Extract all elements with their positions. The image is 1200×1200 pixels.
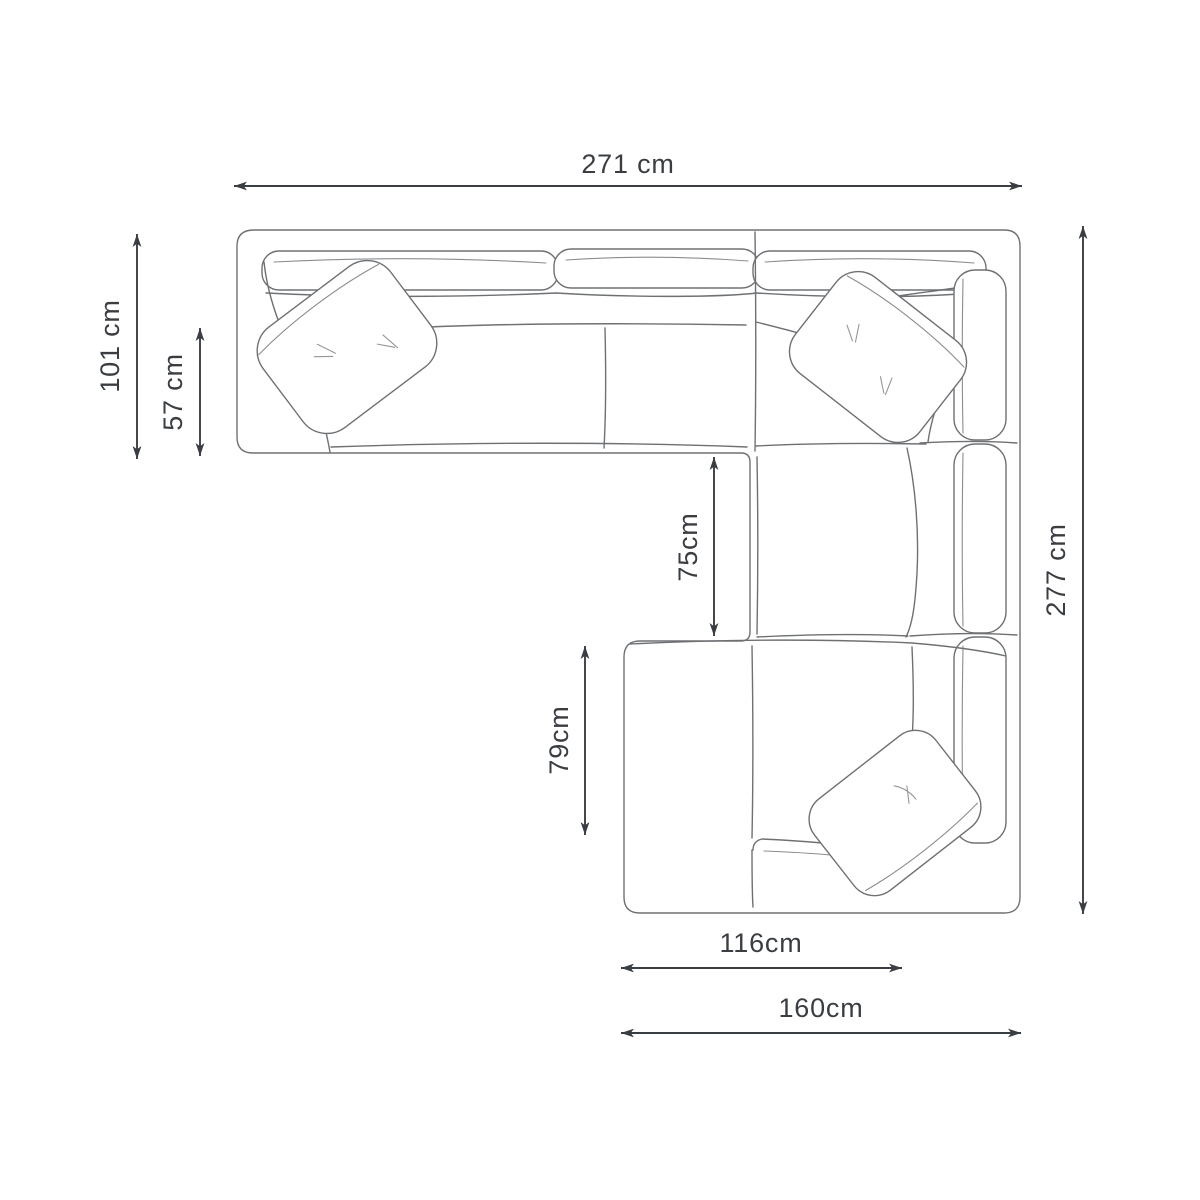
- dimension-total-width: 271 cm: [234, 149, 1022, 186]
- dimension-chaise-width: 116cm: [621, 928, 902, 968]
- dimension-label: 271 cm: [581, 149, 674, 179]
- diagram-canvas: 271 cm 101 cm 57 cm 75cm 79cm 277 cm: [0, 0, 1200, 1200]
- sofa-dimension-diagram: 271 cm 101 cm 57 cm 75cm 79cm 277 cm: [0, 0, 1200, 1200]
- dimension-label: 57 cm: [158, 353, 188, 431]
- dimension-bottom-width: 160cm: [621, 993, 1021, 1033]
- dimension-label: 277 cm: [1041, 523, 1071, 616]
- back-cushion-middle: [554, 249, 759, 288]
- dimension-label: 75cm: [673, 512, 703, 581]
- dimension-chaise-length: 79cm: [544, 646, 585, 835]
- dimension-label: 79cm: [544, 705, 574, 774]
- dimension-inner-depth: 75cm: [673, 457, 714, 636]
- sofa-drawing: [237, 230, 1020, 913]
- back-cushion-left: [262, 251, 558, 290]
- dimension-label: 160cm: [778, 993, 863, 1023]
- dimension-total-depth: 277 cm: [1041, 226, 1083, 914]
- dimension-left-depth: 101 cm: [95, 234, 137, 459]
- dimension-label: 101 cm: [95, 299, 125, 392]
- right-module-inner-seam: [757, 457, 758, 634]
- dimension-label: 116cm: [719, 928, 802, 958]
- module-seam-corner: [755, 232, 756, 451]
- dimension-seat-depth: 57 cm: [158, 328, 200, 456]
